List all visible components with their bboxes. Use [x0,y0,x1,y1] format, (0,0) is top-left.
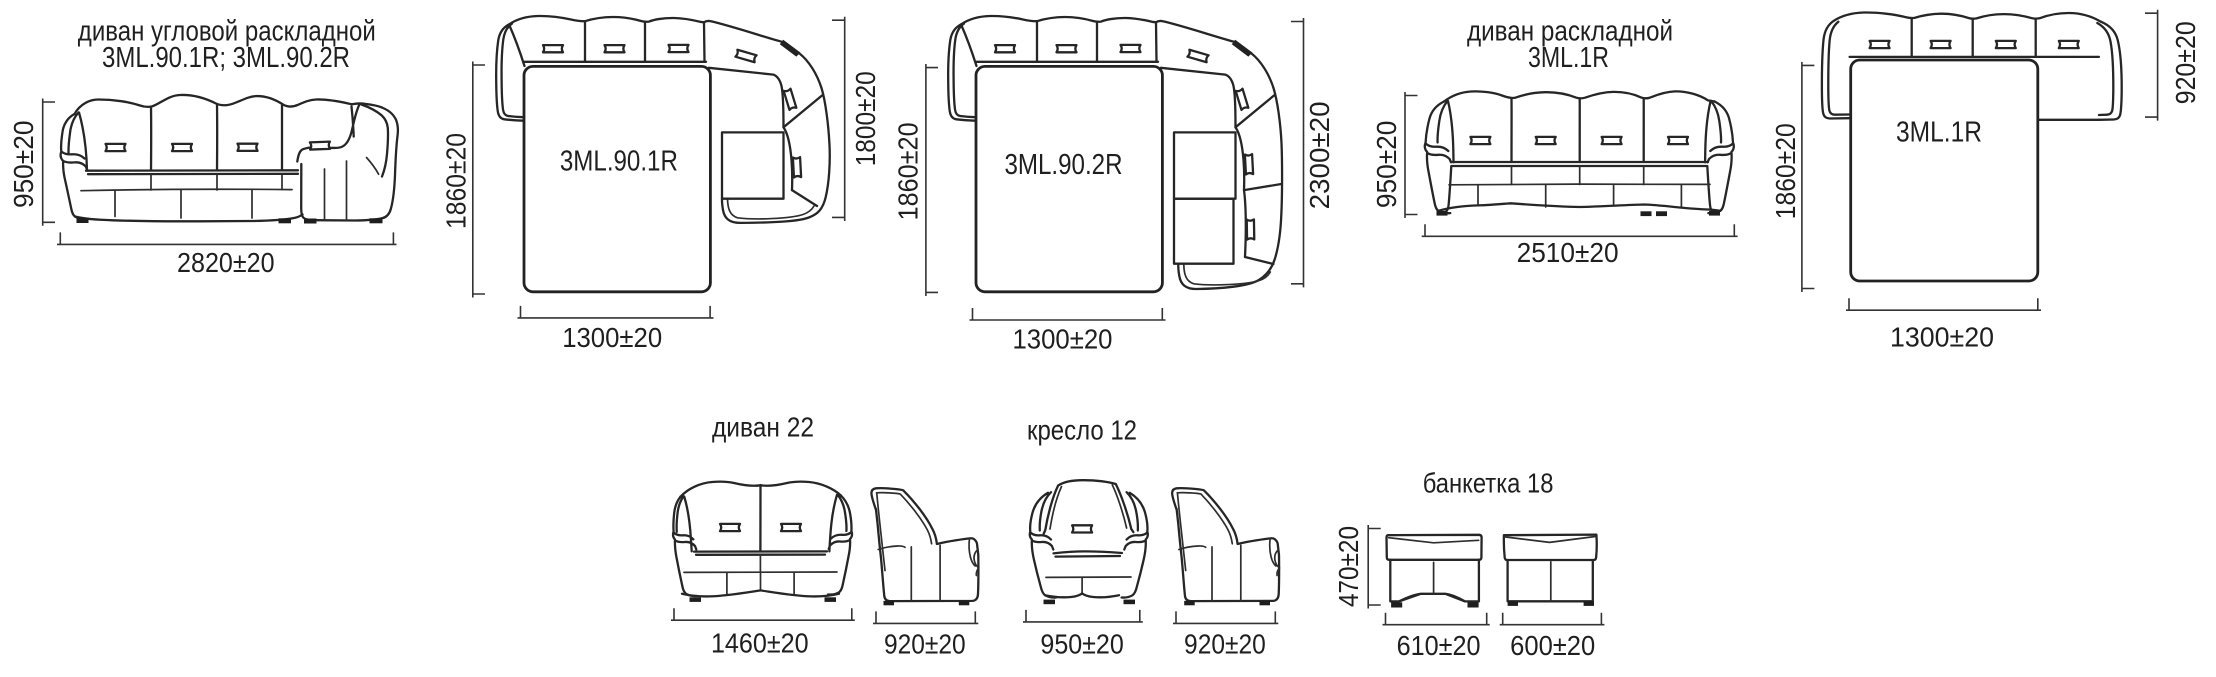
svg-text:1300±20: 1300±20 [1890,322,1994,353]
svg-text:920±20: 920±20 [1184,629,1266,660]
svg-text:3ML.90.1R; 3ML.90.2R: 3ML.90.1R; 3ML.90.2R [102,42,350,74]
svg-text:950±20: 950±20 [1040,629,1123,660]
svg-text:1300±20: 1300±20 [1013,324,1113,355]
svg-text:1860±20: 1860±20 [1770,123,1801,219]
svg-text:920±20: 920±20 [2170,21,2201,104]
svg-text:920±20: 920±20 [884,629,966,660]
svg-text:1860±20: 1860±20 [441,133,472,229]
svg-text:кресло 12: кресло 12 [1027,415,1137,446]
svg-text:2510±20: 2510±20 [1517,237,1619,268]
svg-text:1300±20: 1300±20 [562,322,662,353]
svg-text:950±20: 950±20 [1371,121,1402,209]
svg-text:2300±20: 2300±20 [1304,101,1335,209]
svg-text:950±20: 950±20 [8,121,39,209]
svg-text:диван 22: диван 22 [712,412,814,443]
svg-text:3ML.1R: 3ML.1R [1896,117,1982,149]
svg-text:1460±20: 1460±20 [711,628,809,659]
svg-text:470±20: 470±20 [1333,526,1364,607]
svg-text:2820±20: 2820±20 [177,247,275,278]
svg-text:3ML.90.2R: 3ML.90.2R [1005,149,1123,181]
svg-text:600±20: 600±20 [1510,630,1595,661]
svg-text:3ML.90.1R: 3ML.90.1R [560,146,678,178]
svg-text:3ML.1R: 3ML.1R [1528,42,1609,74]
svg-text:1860±20: 1860±20 [892,122,923,220]
svg-text:1800±20: 1800±20 [850,71,881,166]
svg-text:610±20: 610±20 [1397,630,1481,661]
svg-text:банкетка 18: банкетка 18 [1423,468,1554,499]
